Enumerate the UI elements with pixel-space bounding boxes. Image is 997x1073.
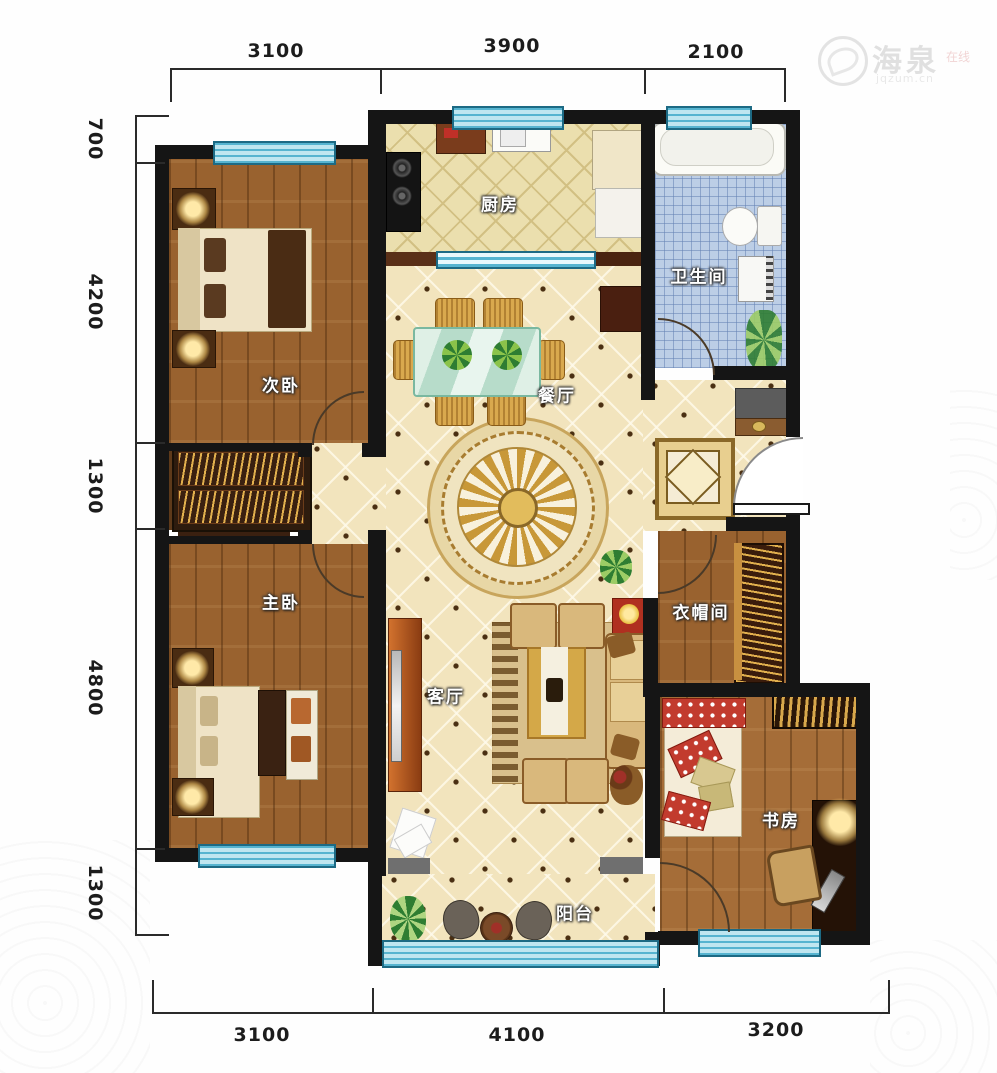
wall-closet-top-line bbox=[169, 443, 312, 451]
dining-chair-4 bbox=[538, 340, 565, 380]
dim-left-label-1: 700 bbox=[84, 118, 106, 161]
dim-left-tick-5 bbox=[135, 848, 165, 850]
wall-study-top bbox=[643, 683, 870, 697]
wall-bathroom-left bbox=[641, 110, 655, 400]
master-shelf-books-1 bbox=[291, 698, 311, 724]
bedroom2-window bbox=[213, 141, 336, 165]
dim-left-tick-6 bbox=[135, 934, 169, 936]
dim-left-tick-4 bbox=[135, 528, 165, 530]
hall-plant bbox=[600, 550, 632, 584]
bedroom2-blanket bbox=[268, 230, 306, 328]
dim-left-label-5: 1300 bbox=[84, 865, 106, 922]
master-lamp-top bbox=[175, 651, 209, 685]
dim-top-label-1: 3100 bbox=[248, 40, 305, 62]
dim-left-tick-1 bbox=[135, 115, 169, 117]
dim-top-label-2: 3900 bbox=[484, 35, 541, 57]
kitchen-fridge bbox=[595, 188, 642, 238]
cloak-wardrobe-rail bbox=[734, 543, 742, 680]
dim-left-tick-3 bbox=[135, 442, 165, 444]
floor-medallion-center bbox=[498, 488, 538, 528]
dim-top-tick-1 bbox=[170, 68, 172, 102]
wall-right-upper bbox=[786, 110, 800, 437]
dining-chair-5 bbox=[435, 392, 474, 426]
bedroom2-lamp-top bbox=[176, 192, 210, 226]
entry-console-deco bbox=[752, 421, 766, 432]
dim-bottom-label-3: 3200 bbox=[748, 1019, 805, 1041]
wardrobe-rail-bottom bbox=[178, 490, 304, 524]
armchair-bottom-1 bbox=[522, 758, 569, 804]
balcony-plant bbox=[390, 896, 426, 942]
watermark: 海泉 在线 jqzum.cn bbox=[818, 28, 988, 98]
watermark-site: jqzum.cn bbox=[876, 72, 934, 85]
wall-balcony-left bbox=[368, 862, 382, 966]
master-pillow-2 bbox=[200, 736, 218, 766]
stove-burner-2 bbox=[392, 186, 412, 206]
bedroom2-pillow-1 bbox=[204, 238, 226, 272]
dining-table bbox=[413, 327, 541, 397]
room-label-bathroom: 卫生间 bbox=[671, 263, 728, 288]
dim-bottom-label-2: 4100 bbox=[489, 1024, 546, 1046]
dim-bottom-label-1: 3100 bbox=[234, 1024, 291, 1046]
dim-bottom-tick-4 bbox=[888, 980, 890, 1014]
dim-left-tick-2 bbox=[135, 162, 165, 164]
dim-top-line bbox=[170, 68, 786, 70]
bathtub-basin bbox=[660, 128, 774, 166]
master-bench bbox=[258, 690, 286, 776]
entry-door-leaf bbox=[733, 503, 810, 515]
study-window bbox=[698, 929, 821, 957]
study-bolster bbox=[662, 698, 746, 728]
coffee-table-tray bbox=[546, 678, 563, 702]
wall-study-left-upper bbox=[645, 697, 660, 858]
bathroom-plant bbox=[746, 310, 782, 370]
master-window bbox=[198, 844, 336, 868]
balcony-window bbox=[382, 940, 659, 968]
master-shelf-books-2 bbox=[291, 736, 311, 762]
pier-closet-bottom bbox=[298, 530, 312, 544]
balcony-parapet-left bbox=[388, 858, 430, 874]
dim-top-tick-2 bbox=[380, 68, 382, 94]
tv-screen bbox=[391, 650, 402, 762]
sofa-cushion-2 bbox=[610, 682, 646, 722]
wall-center-lower bbox=[368, 530, 386, 876]
wall-study-bottom-left bbox=[658, 931, 700, 945]
dim-top-tick-3 bbox=[644, 68, 646, 94]
bathroom-window bbox=[666, 106, 752, 130]
kitchen-sliding-door bbox=[436, 251, 596, 269]
room-label-living: 客厅 bbox=[427, 683, 465, 708]
wall-center-upper bbox=[368, 110, 386, 443]
floorplan-canvas: 厨房 卫生间 次卧 餐厅 主卧 客厅 衣帽间 书房 阳台 3100 3900 2… bbox=[0, 0, 997, 1073]
stove-burner-1 bbox=[392, 158, 412, 178]
pier-closet-top bbox=[298, 443, 312, 457]
washing-machine-panel bbox=[766, 256, 773, 300]
study-chair bbox=[766, 844, 823, 907]
bedroom2-pillow-2 bbox=[204, 284, 226, 318]
study-bookshelf bbox=[772, 693, 860, 729]
kitchen-cabinet bbox=[592, 130, 642, 190]
background-swirl-right bbox=[950, 380, 997, 580]
kitchen-window bbox=[452, 106, 564, 130]
dim-left-line bbox=[135, 115, 137, 935]
dim-bottom-tick-2 bbox=[372, 988, 374, 1014]
room-label-balcony: 阳台 bbox=[556, 900, 594, 925]
wall-right-mid bbox=[786, 512, 800, 697]
room-label-kitchen: 厨房 bbox=[481, 191, 519, 216]
room-label-cloakroom: 衣帽间 bbox=[673, 599, 730, 624]
kitchen-slider-base bbox=[386, 252, 436, 266]
pier-bedroom2-door bbox=[362, 443, 386, 457]
wall-study-right bbox=[856, 683, 870, 945]
balcony-parapet-right bbox=[600, 857, 643, 874]
dim-left-label-4: 4800 bbox=[84, 660, 106, 717]
vestibule-floor bbox=[305, 443, 386, 544]
toilet-tank bbox=[757, 206, 782, 246]
dim-left-label-2: 4200 bbox=[84, 274, 106, 331]
wall-master-top-line bbox=[169, 536, 312, 544]
dining-sideboard bbox=[600, 286, 643, 332]
armchair-top-2 bbox=[558, 603, 605, 649]
wall-hall-divider bbox=[726, 517, 786, 531]
kitchen-slider-right bbox=[592, 252, 641, 266]
dim-bottom-line bbox=[152, 1012, 890, 1014]
kitchen-sink-basin bbox=[500, 127, 526, 147]
dining-plant-1 bbox=[442, 340, 472, 370]
master-lamp-bottom bbox=[175, 780, 209, 814]
bedroom2-headboard bbox=[178, 228, 200, 330]
dim-bottom-tick-3 bbox=[663, 988, 665, 1014]
bedroom2-lamp-bottom bbox=[176, 332, 210, 366]
room-label-master: 主卧 bbox=[262, 589, 300, 614]
living-flowers bbox=[610, 765, 643, 805]
room-label-bedroom2: 次卧 bbox=[262, 372, 300, 397]
background-swirl-bottom-left bbox=[0, 840, 150, 1073]
shoe-cabinet bbox=[735, 388, 788, 420]
dim-bottom-tick-1 bbox=[152, 980, 154, 1014]
watermark-tag: 在线 bbox=[946, 48, 970, 65]
room-label-study: 书房 bbox=[762, 807, 800, 832]
dining-plant-2 bbox=[492, 340, 522, 370]
dining-chair-6 bbox=[487, 392, 526, 426]
armchair-top-1 bbox=[510, 603, 557, 649]
dim-top-label-3: 2100 bbox=[688, 41, 745, 63]
toilet-bowl bbox=[722, 207, 758, 246]
room-label-dining: 餐厅 bbox=[538, 382, 576, 407]
red-table-lamp bbox=[619, 604, 639, 624]
wall-study-bottom-right bbox=[815, 931, 870, 945]
armchair-bottom-2 bbox=[565, 758, 609, 804]
master-pillow-1 bbox=[200, 696, 218, 726]
dim-top-tick-4 bbox=[784, 68, 786, 102]
wall-left bbox=[155, 145, 169, 862]
dim-left-label-3: 1300 bbox=[84, 458, 106, 515]
wardrobe-rail-top bbox=[178, 452, 304, 486]
